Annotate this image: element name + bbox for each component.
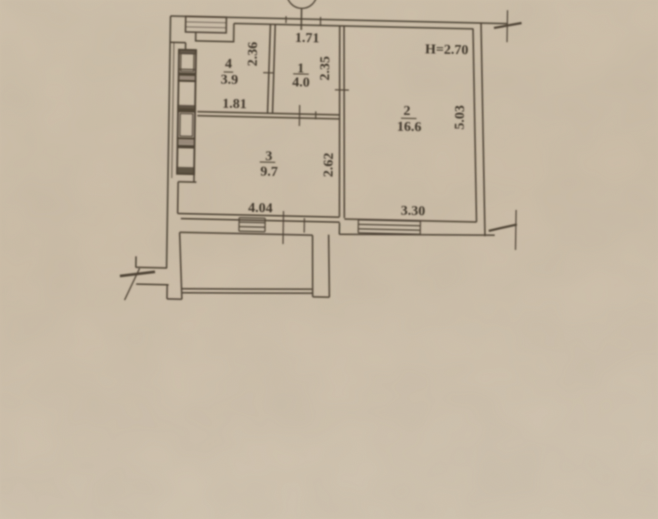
svg-text:4: 4 xyxy=(225,57,232,72)
svg-text:16.6: 16.6 xyxy=(397,120,422,136)
svg-text:9.7: 9.7 xyxy=(260,165,278,180)
svg-text:1.71: 1.71 xyxy=(295,31,320,47)
svg-text:3.30: 3.30 xyxy=(401,204,426,220)
svg-text:5.03: 5.03 xyxy=(453,105,468,130)
svg-text:2.62: 2.62 xyxy=(322,152,337,177)
svg-text:H=2.70: H=2.70 xyxy=(425,42,469,58)
svg-text:1.81: 1.81 xyxy=(222,97,247,113)
svg-text:2: 2 xyxy=(403,104,410,119)
svg-text:4.04: 4.04 xyxy=(248,201,273,217)
svg-text:4.0: 4.0 xyxy=(292,75,310,90)
svg-text:2.36: 2.36 xyxy=(246,42,261,67)
svg-text:2.35: 2.35 xyxy=(318,56,333,81)
svg-text:3.9: 3.9 xyxy=(221,72,239,87)
